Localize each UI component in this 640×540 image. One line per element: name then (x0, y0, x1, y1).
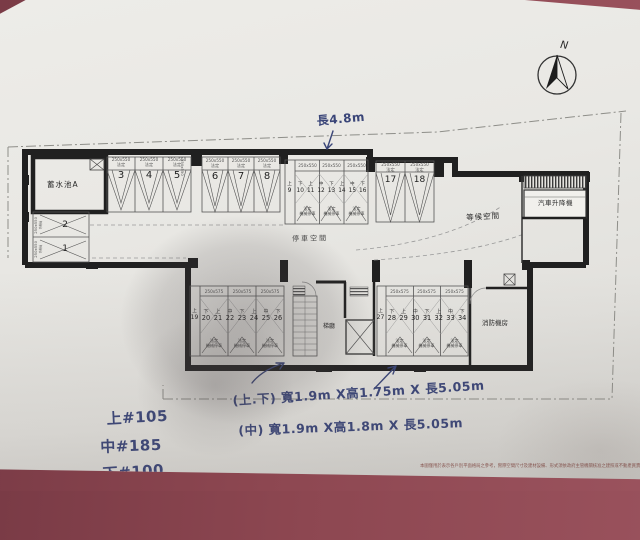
parking-stall: 250x550 法定 3 (107, 158, 135, 181)
mid-stack-columns: 下 10 上 11 中 12 下 13 上 14 中 15 下 16 (295, 183, 368, 194)
stall-number: 13 (328, 188, 335, 194)
stall-number: 31 (423, 315, 431, 322)
parking-aisle-label: 停車空間 (292, 235, 328, 243)
mechanical-parking-label: 機械停車 (300, 212, 316, 217)
car-lift-linework (519, 172, 590, 263)
stack-size-label: 250x575 (386, 289, 413, 294)
stall-number: 30 (411, 315, 419, 322)
fire-room-label: 消防機房 (482, 320, 508, 327)
stall-type-label: 法定 (38, 245, 42, 253)
stalls-1-2: 250x550 法定 2 250x550 法定 1 (34, 213, 88, 261)
stall-number: 19 (191, 315, 199, 321)
stack-column: 中 15 (347, 183, 357, 194)
handwritten-price-middle: 中#185 (100, 434, 162, 457)
stack-column: 下 34 (456, 310, 468, 322)
stalls-17-18: 250x550 法定 17 250x550 法定 18 (376, 163, 434, 185)
stack-column: 上 29 (398, 310, 410, 322)
floor-plan-paper: 蓄水池A 停車空間 等候空間 汽車升降機 梯廳 消防機房 N 250x550 2… (0, 0, 640, 491)
stall-number: 1 (42, 244, 88, 254)
stack-size-label: 250x550 (296, 163, 319, 168)
stack-column: 下 13 (326, 183, 336, 194)
car-lift-label: 汽車升降機 (538, 200, 573, 207)
stall-type-label: 法定 (117, 163, 125, 168)
parking-stall: 250x550 法定 1 (34, 237, 88, 261)
stack-column: 上 11 (305, 183, 315, 194)
stall-number: 28 (388, 315, 396, 322)
stall-number: 26 (274, 315, 282, 322)
stall-type-label: 法定 (386, 168, 394, 173)
stack-footer-label: 法定 機械停車 (413, 339, 440, 349)
stall-number: 4 (146, 170, 152, 181)
stall-number: 11 (307, 188, 314, 194)
stack-column: 下 20 (200, 310, 212, 322)
stall-number: 17 (385, 175, 396, 185)
stall-type-label: 法定 (415, 168, 423, 173)
stack-column: 中 12 (316, 183, 326, 194)
stall-number: 23 (238, 315, 246, 322)
stack-column: 中 22 (224, 310, 236, 322)
stack-side-column: 上 19 (189, 310, 200, 321)
handwritten-price-lower: 下#100 (102, 459, 165, 484)
stall-type-label: 法定 (38, 221, 42, 229)
stall-number: 22 (226, 315, 234, 322)
mechanical-parking-label: 機械停車 (206, 344, 222, 349)
mechanical-parking-label: 機械停車 (324, 212, 340, 217)
mechanical-parking-label: 機械停車 (349, 212, 365, 217)
stack-column: 中 25 (260, 310, 272, 322)
stack-footer-label: 法定 機械停車 (228, 339, 256, 349)
stack-column: 下 28 (386, 310, 398, 322)
stall-number: 6 (212, 171, 218, 182)
stack-size-label: 250x575 (441, 289, 468, 294)
stall-type-label: 法定 (145, 163, 153, 168)
stack-size-label: 250x575 (228, 289, 256, 294)
stall-number: 15 (349, 188, 356, 194)
stack-size-label: 250x575 (256, 289, 284, 294)
stall-number: 29 (399, 315, 407, 322)
stall-number: 12 (317, 188, 324, 194)
stack-column: 下 23 (236, 310, 248, 322)
stack-side-column: 上 9 (284, 183, 295, 194)
stall-number: 16 (359, 188, 366, 194)
stall-type-label: 法定 (173, 163, 181, 168)
stall-number: 24 (250, 315, 258, 322)
north-label: N (559, 40, 568, 53)
stall-number: 9 (288, 188, 292, 194)
parking-stall: 250x550 法定 2 (34, 213, 88, 237)
stack-footer-label: 法定 機械停車 (386, 339, 413, 349)
stack-size-label: 250x575 (413, 289, 440, 294)
stall-number: 27 (377, 315, 385, 321)
stall-number: 18 (414, 175, 425, 185)
stack-column: 下 26 (272, 310, 284, 322)
stack-column: 上 24 (248, 310, 260, 322)
north-compass-icon (538, 55, 576, 94)
stall-number: 34 (458, 315, 466, 322)
stack-footer-label: 法定 機械停車 (200, 339, 228, 349)
stair-core-linework (293, 282, 374, 356)
lower-left-stack-columns: 下 20 上 21 中 22 下 23 上 24 中 25 下 26 (200, 310, 284, 322)
parking-stall: 250x550 法定 18 (405, 163, 434, 185)
parking-stall: 250x550 法定 17 (376, 163, 405, 185)
handwritten-price-upper: 上#105 (106, 405, 168, 429)
stack-column: 上 14 (337, 183, 347, 194)
stack-column: 下 10 (295, 183, 305, 194)
stack-column: 下 16 (358, 183, 368, 194)
photo-of-floor-plan: { "photo": { "paper_color": "#e9e8e4", "… (0, 0, 640, 491)
stall-number: 2 (42, 220, 88, 230)
stall-number: 10 (297, 188, 304, 194)
parking-stall: 250x550 法定 4 (135, 158, 163, 181)
stall-number: 32 (435, 315, 443, 322)
parking-stall: 250x550 法定 6 (202, 159, 228, 182)
disclaimer-text: 本圖僅用於表示各戶別平面格局之參考，實際空間尺寸及建材設備、形式須依政府主管機關… (420, 462, 640, 468)
stalls-3-5: 250x550 法定 3 250x550 法定 4 250x550 法定 5 (107, 158, 191, 181)
stall-number: 33 (446, 315, 454, 322)
mechanical-parking-label: 機械停車 (234, 344, 250, 349)
stall-number: 8 (264, 171, 270, 182)
stall-number: 25 (262, 315, 270, 322)
mechanical-parking-label: 機械停車 (419, 344, 435, 349)
stall-type-label: 法定 (237, 164, 245, 169)
stack-footer-label: 法定 機械停車 (441, 339, 468, 349)
stack-footer-label: 法定 機械停車 (296, 207, 319, 217)
stack-column: 中 33 (445, 310, 457, 322)
stall-number: 21 (214, 315, 222, 322)
mechanical-parking-label: 機械停車 (392, 344, 408, 349)
stall-number: 7 (238, 171, 244, 182)
stack-column: 上 21 (212, 310, 224, 322)
stack-size-label: 250x550 (345, 163, 368, 168)
stack-column: 中 30 (409, 310, 421, 322)
stall-type-label: 法定 (263, 164, 271, 169)
stack-column: 下 31 (421, 310, 433, 322)
stall-number: 3 (118, 170, 124, 181)
stack-side-column: 上 27 (375, 310, 386, 321)
stack-footer-label: 法定 機械停車 (256, 339, 284, 349)
mechanical-parking-label: 機械停車 (447, 344, 463, 349)
stalls-6-8: 250x550 法定 6 250x550 法定 7 250x550 法定 8 (202, 159, 280, 182)
stack-footer-label: 法定 機械停車 (320, 207, 343, 217)
stall-number: 20 (202, 315, 210, 322)
stall-number: 14 (338, 188, 345, 194)
stack-size-label: 250x550 (320, 163, 343, 168)
elevator-hall-label: 梯廳 (323, 324, 335, 331)
stack-column: 上 32 (433, 310, 445, 322)
stack-size-label: 250x575 (200, 289, 228, 294)
water-tank-label: 蓄水池A (47, 181, 79, 189)
stall-number: 5 (174, 170, 180, 181)
parking-stall: 250x550 法定 7 (228, 159, 254, 182)
lower-right-stack-columns: 下 28 上 29 中 30 下 31 上 32 中 33 下 34 (386, 310, 468, 322)
parking-stall: 250x550 法定 8 (254, 159, 280, 182)
parking-stall: 250x550 法定 5 (163, 158, 191, 181)
stall-type-label: 法定 (211, 164, 219, 169)
mechanical-parking-label: 機械停車 (262, 344, 278, 349)
stack-footer-label: 法定 機械停車 (345, 207, 368, 217)
